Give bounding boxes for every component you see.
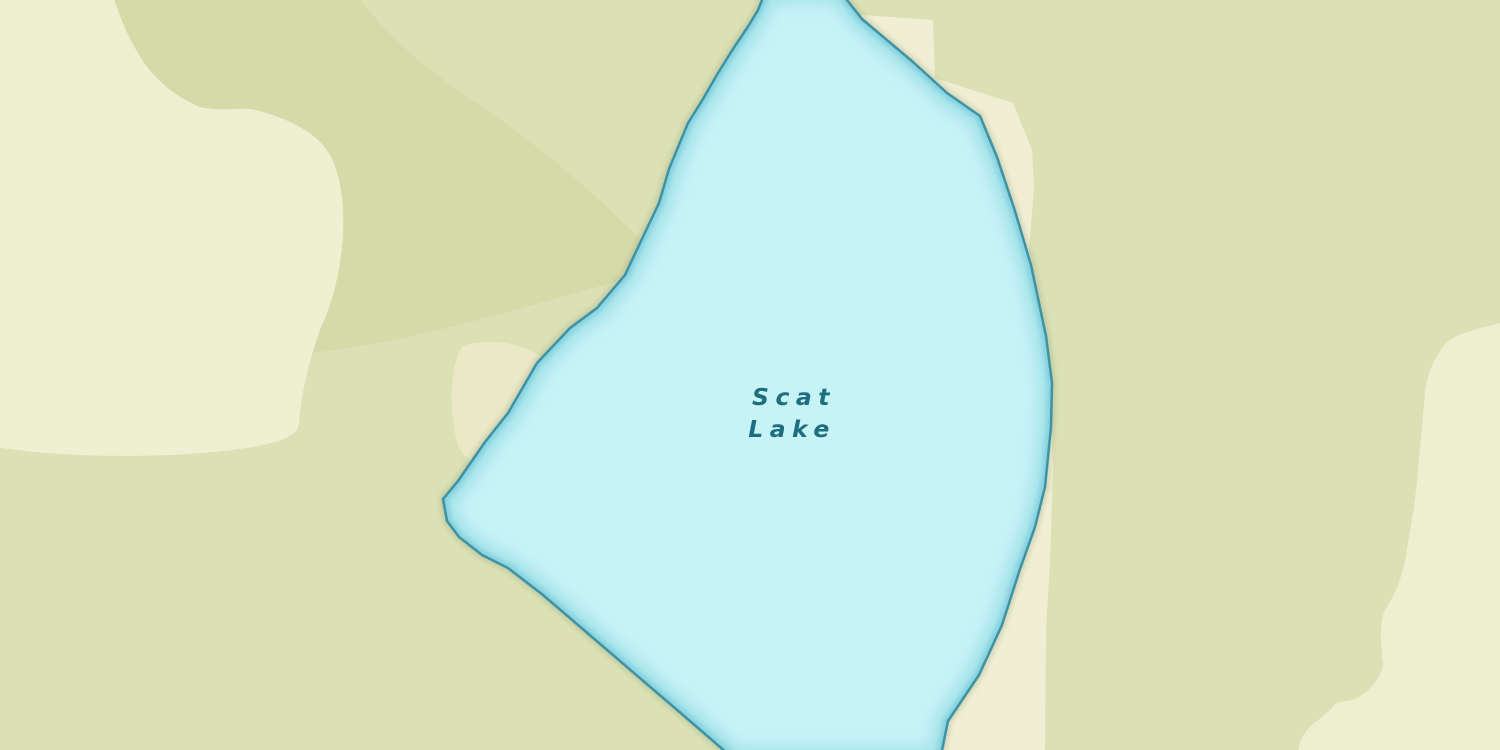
lake-label-line2: Lake: [748, 415, 836, 443]
map-canvas[interactable]: Scat Lake: [0, 0, 1500, 750]
map-viewport[interactable]: Scat Lake: [0, 0, 1500, 750]
lake-label-line1: Scat: [752, 383, 836, 411]
